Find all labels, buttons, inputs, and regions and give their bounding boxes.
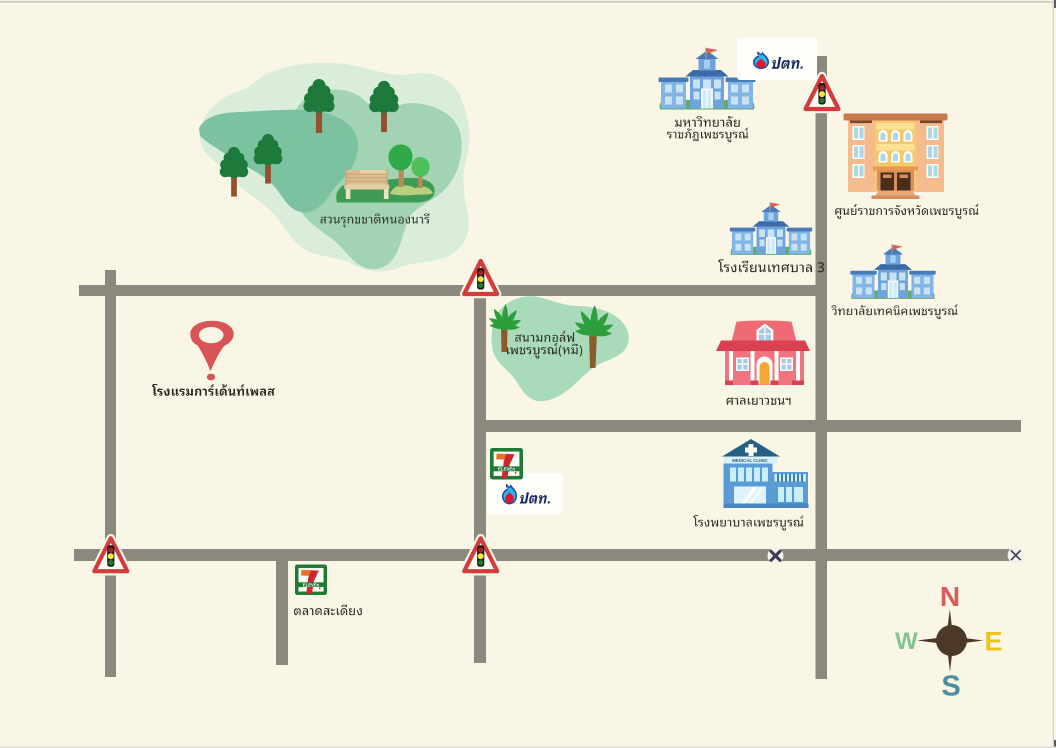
svg-text:MEDICAL CLINIC: MEDICAL CLINIC: [732, 458, 769, 463]
svg-text:N: N: [940, 581, 960, 612]
svg-text:S: S: [941, 671, 960, 703]
svg-text:W: W: [895, 628, 918, 655]
svg-text:E: E: [984, 627, 1002, 657]
